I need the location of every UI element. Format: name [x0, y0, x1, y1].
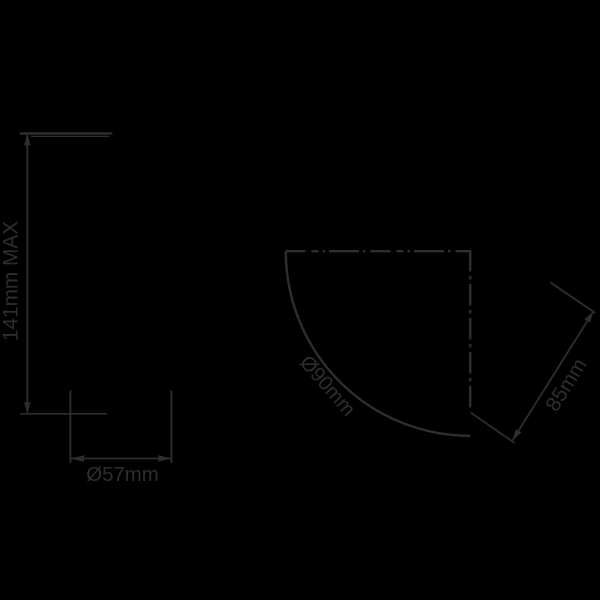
svg-text:Ø57mm: Ø57mm	[86, 464, 159, 486]
svg-text:141mm MAX: 141mm MAX	[0, 221, 22, 341]
